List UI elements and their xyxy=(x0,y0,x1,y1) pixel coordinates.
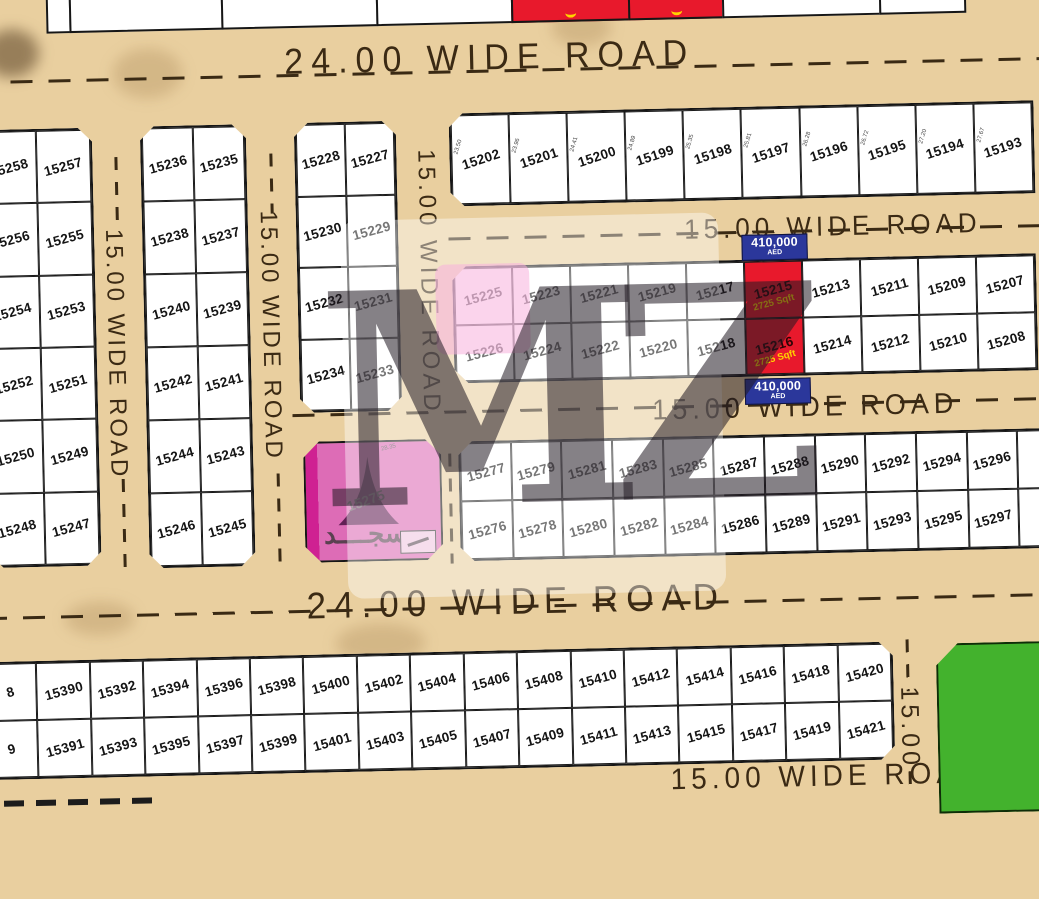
plot-number: 15416 xyxy=(737,663,779,688)
paper-stain xyxy=(64,601,135,637)
plot-cell: 15414 xyxy=(677,647,732,705)
green-plot xyxy=(936,641,1039,814)
plot-number: 15410 xyxy=(577,666,619,691)
plot-cell-partial-red xyxy=(627,0,724,20)
plot-cell: 15296 xyxy=(966,431,1018,490)
plot-number: 8 xyxy=(4,684,15,701)
plot-cell-partial xyxy=(375,0,513,26)
plot-number: 15200 xyxy=(576,143,618,170)
plot-number: 15295 xyxy=(922,507,964,532)
plot-number: 15395 xyxy=(151,733,193,758)
plot-number: 15404 xyxy=(417,670,459,695)
plot-cell: 15392 xyxy=(90,661,145,719)
plot-cell: 15228 xyxy=(296,124,347,197)
plot-cell: 15256 xyxy=(0,203,39,277)
plot-number: 15245 xyxy=(207,516,249,541)
plot-cell: 15213 xyxy=(802,259,861,317)
plot-number: 15210 xyxy=(928,330,970,355)
plot-number: 15409 xyxy=(525,725,567,750)
plot-number: 15392 xyxy=(96,677,138,702)
plot-cell: 15252 xyxy=(0,348,42,422)
plot-number: 15214 xyxy=(812,332,854,357)
plot-number: 15197 xyxy=(750,139,792,166)
plot-number: 15213 xyxy=(811,276,853,301)
plot-cell: 15396 xyxy=(196,658,251,716)
plot-cell: 15420 xyxy=(837,644,892,702)
plot-number: 15290 xyxy=(820,451,862,476)
plot-number: 15414 xyxy=(684,664,726,689)
plot-cell: 15212 xyxy=(861,314,920,372)
plot-number: 15296 xyxy=(972,448,1014,473)
plot-cell: 15413 xyxy=(625,705,680,763)
plot-cell: 15403 xyxy=(358,712,413,770)
plot-cell: 15410 xyxy=(570,650,625,708)
plot-number: 15235 xyxy=(198,151,240,176)
watermark-text: MZ xyxy=(314,228,771,568)
plot-number: 15402 xyxy=(363,671,405,696)
plot-cell: 15402 xyxy=(357,655,412,713)
plot-number: 15411 xyxy=(578,723,619,748)
plot-number: 15406 xyxy=(470,669,512,694)
plot-cell: 25.3515198 xyxy=(683,109,743,199)
plot-cell: 15290 xyxy=(815,434,867,493)
plot-cell: 15400 xyxy=(303,656,358,714)
plot-number: 15244 xyxy=(154,444,196,469)
plot-number: 15417 xyxy=(738,720,780,745)
plot-number: 15201 xyxy=(518,145,560,172)
plot-cell: 23.9615201 xyxy=(509,113,569,203)
plot-number: 15399 xyxy=(258,731,300,756)
plot-cell: 15393 xyxy=(91,718,146,776)
plot-number: 15227 xyxy=(349,147,391,172)
plot-dimension: 26.72 xyxy=(860,129,870,145)
plot-cell: 15398 xyxy=(250,657,305,715)
plot-cell: 15238 xyxy=(143,200,196,274)
plot-cell: 15247 xyxy=(44,491,100,565)
plot-number: 15258 xyxy=(0,155,30,180)
plot-cell: 15418 xyxy=(784,645,839,703)
plot-number: 9 xyxy=(6,741,17,758)
plot-cell: 15291 xyxy=(816,492,868,551)
plot-cell: 15255 xyxy=(37,202,93,276)
plot-dimension: 23.96 xyxy=(511,137,521,153)
plot-number: 15237 xyxy=(200,224,242,249)
plot-cell: 15245 xyxy=(201,491,254,565)
plot-number: 15228 xyxy=(300,148,342,173)
plot-cell: 15241 xyxy=(198,345,251,419)
plot-cell-partial xyxy=(721,0,881,18)
plot-cell: 15295 xyxy=(917,490,969,549)
plot-cell: 15419 xyxy=(785,702,840,760)
block-west: 1525815257152561525515254152531525215251… xyxy=(0,128,102,568)
plot-cell: 15412 xyxy=(624,648,679,706)
plot-number: 15243 xyxy=(205,443,247,468)
plot-number: 15391 xyxy=(44,736,86,761)
plot-number: 15202 xyxy=(460,146,502,173)
plot-cell: 15415 xyxy=(678,704,733,762)
plot-number: 15193 xyxy=(982,134,1024,161)
plot-cell: 15406 xyxy=(463,652,518,710)
plot-number: 15247 xyxy=(51,516,93,541)
plot-number: 15251 xyxy=(48,371,90,396)
plot-cell: 15242 xyxy=(147,346,200,420)
plot-cell: 15417 xyxy=(732,703,787,761)
plot-cell: 15292 xyxy=(865,433,917,492)
plot-cell xyxy=(1018,488,1039,547)
plot-cell: 15399 xyxy=(251,714,306,772)
plot-cell: 24.8915199 xyxy=(625,110,685,200)
plot-number: 15408 xyxy=(523,668,565,693)
plot-number: 15209 xyxy=(927,273,969,298)
plot-number: 15195 xyxy=(866,137,908,164)
plot-number: 15394 xyxy=(150,676,192,701)
plot-number: 15297 xyxy=(973,506,1015,531)
plot-number: 15407 xyxy=(471,726,513,751)
plot-number: 15194 xyxy=(924,136,966,163)
plot-cell: 15293 xyxy=(867,491,919,550)
plot-cell: 15401 xyxy=(305,713,360,771)
plot-number: 15196 xyxy=(808,138,850,165)
plot-number: 15239 xyxy=(202,297,244,322)
plot-cell: 15407 xyxy=(465,709,520,767)
plot-number: 15238 xyxy=(149,225,191,250)
plot-number: 15292 xyxy=(870,450,912,475)
plot-cell: 27.2015194 xyxy=(915,104,975,194)
plot-number: 15254 xyxy=(0,300,34,325)
plot-number: 15412 xyxy=(630,665,672,690)
block-west-mid: 1523615235152381523715240152391524215241… xyxy=(140,124,256,568)
plot-cell: 15257 xyxy=(36,130,92,204)
plot-number: 15418 xyxy=(790,662,832,687)
plot-cell: 15253 xyxy=(39,274,95,348)
plot-cell: 15258 xyxy=(0,131,37,205)
plot-cell: 23.5015202 xyxy=(451,114,511,204)
plot-cell: 15294 xyxy=(916,432,968,491)
plot-dimension: 23.50 xyxy=(453,139,463,155)
road-centerline xyxy=(4,797,154,806)
plot-number: 15253 xyxy=(46,299,88,324)
plot-cell: 15251 xyxy=(41,347,97,421)
plot-cell: 15209 xyxy=(918,257,977,315)
plot-cell: 15239 xyxy=(196,272,249,346)
plot-dimension: 25.81 xyxy=(744,132,754,148)
plot-cell: 15421 xyxy=(839,701,894,759)
plot-number: 15256 xyxy=(0,228,32,253)
plot-number: 15240 xyxy=(151,298,193,323)
plot-cell: 15214 xyxy=(803,316,862,374)
plot-number: 15249 xyxy=(49,443,91,468)
plot-cell: 15297 xyxy=(968,489,1020,548)
plot-cell: 25.8115197 xyxy=(741,108,801,198)
paper-stain xyxy=(0,29,40,78)
plot-dimension: 25.35 xyxy=(686,133,696,149)
plot-cell: 15397 xyxy=(198,715,253,773)
plot-dimension: 24.41 xyxy=(570,136,580,152)
plot-number: 15398 xyxy=(256,674,298,699)
plot-cell: 15391 xyxy=(38,719,93,777)
plot-number: 15419 xyxy=(792,719,834,744)
plot-map: 24.00 WIDE ROAD 15.00 WIDE ROAD 15.00 WI… xyxy=(0,0,1039,812)
plot-cell: 15249 xyxy=(42,419,98,493)
plot-cell: 15243 xyxy=(199,418,252,492)
plot-number: 15403 xyxy=(364,728,406,753)
plot-number: 15413 xyxy=(631,722,673,747)
plot-number: 15390 xyxy=(43,679,85,704)
plot-dimension: 24.89 xyxy=(628,135,638,151)
plot-cell: 15408 xyxy=(517,651,572,709)
plot-cell: 15411 xyxy=(572,707,627,765)
road-label-top: 24.00 WIDE ROAD xyxy=(284,33,696,84)
plot-number: 15241 xyxy=(203,370,245,395)
plot-cell: 15210 xyxy=(919,313,978,371)
road-label-right-vertical: 15.00 xyxy=(892,577,928,878)
cutoff-text-mark xyxy=(565,8,576,18)
plot-cell: 15236 xyxy=(142,127,195,201)
plot-cell: 27.6715193 xyxy=(973,102,1033,192)
plot-cell: 15248 xyxy=(0,492,46,566)
plot-cell xyxy=(1017,430,1039,489)
plot-cell: 15416 xyxy=(730,646,785,704)
plot-cell: 15237 xyxy=(194,199,247,273)
plot-cell: 15254 xyxy=(0,276,41,350)
plot-dimension: 26.28 xyxy=(802,131,812,147)
plot-cell: 15208 xyxy=(977,312,1036,370)
plot-cell: 15244 xyxy=(148,419,201,493)
plot-number: 15208 xyxy=(986,328,1028,353)
plot-number: 15396 xyxy=(203,675,245,700)
block-south: 8153901539215394153961539815400154021540… xyxy=(0,642,895,781)
plot-cell: 15227 xyxy=(345,123,396,196)
plot-number: 15397 xyxy=(204,732,246,757)
plot-dimension: 27.20 xyxy=(918,128,928,144)
plot-number: 15294 xyxy=(921,449,963,474)
plot-cell: 15207 xyxy=(976,255,1035,313)
plot-cell: 15246 xyxy=(150,492,203,566)
road-centerline xyxy=(277,473,282,569)
plot-cell: 15409 xyxy=(518,708,573,766)
plot-cell: 15390 xyxy=(36,662,91,720)
plot-cell: 15235 xyxy=(193,126,246,200)
plot-number: 15242 xyxy=(152,371,194,396)
plot-cell: 15404 xyxy=(410,653,465,711)
plot-number: 15255 xyxy=(44,226,86,251)
plot-number: 15236 xyxy=(147,152,189,177)
plot-cell: 26.7215195 xyxy=(857,105,917,195)
plot-cell: 8 xyxy=(0,663,38,721)
plot-number: 15420 xyxy=(844,660,886,685)
plot-cell-partial xyxy=(45,0,71,34)
plot-number: 15252 xyxy=(0,372,35,397)
plot-number: 15400 xyxy=(310,672,352,697)
paper-stain xyxy=(112,48,183,100)
plot-number: 15401 xyxy=(311,729,353,754)
plot-cell: 24.4115200 xyxy=(567,112,627,202)
plot-number: 15212 xyxy=(870,331,912,356)
plot-cell: 9 xyxy=(0,720,39,778)
plot-cell-partial xyxy=(878,0,966,15)
plot-cell: 26.2815196 xyxy=(799,106,859,196)
plot-number: 15291 xyxy=(821,509,863,534)
plot-number: 15211 xyxy=(869,275,910,300)
plot-cell-partial xyxy=(68,0,223,33)
cutoff-text-mark xyxy=(671,5,682,15)
plot-number: 15393 xyxy=(97,734,139,759)
plot-number: 15246 xyxy=(156,517,198,542)
plot-number: 15421 xyxy=(845,717,887,742)
plot-number: 15415 xyxy=(685,721,727,746)
road-label-left-vertical: 15.00 WIDE ROAD xyxy=(98,204,133,505)
plot-number: 15199 xyxy=(634,142,676,169)
plot-cell-partial xyxy=(220,0,378,30)
plot-number: 15405 xyxy=(418,727,460,752)
plot-cell: 15394 xyxy=(143,659,198,717)
road-label-center-left-vertical: 15.00 WIDE ROAD xyxy=(253,185,288,486)
plot-number: 15250 xyxy=(0,445,37,470)
plot-cell: 15395 xyxy=(144,716,199,774)
plot-cell: 15211 xyxy=(860,258,919,316)
plot-cell-partial-red xyxy=(510,0,630,23)
plot-number: 15207 xyxy=(985,272,1027,297)
plot-number: 15248 xyxy=(0,517,39,542)
plot-cell: 15240 xyxy=(145,273,198,347)
plot-cell: 15405 xyxy=(411,710,466,768)
block-north-strip: 23.501520223.961520124.411520024.8915199… xyxy=(448,100,1035,206)
plot-number: 15293 xyxy=(872,508,914,533)
plot-dimension: 27.67 xyxy=(976,127,986,143)
plot-cell: 15250 xyxy=(0,420,44,494)
plot-number: 15257 xyxy=(43,154,85,179)
plot-number: 15198 xyxy=(692,141,734,168)
